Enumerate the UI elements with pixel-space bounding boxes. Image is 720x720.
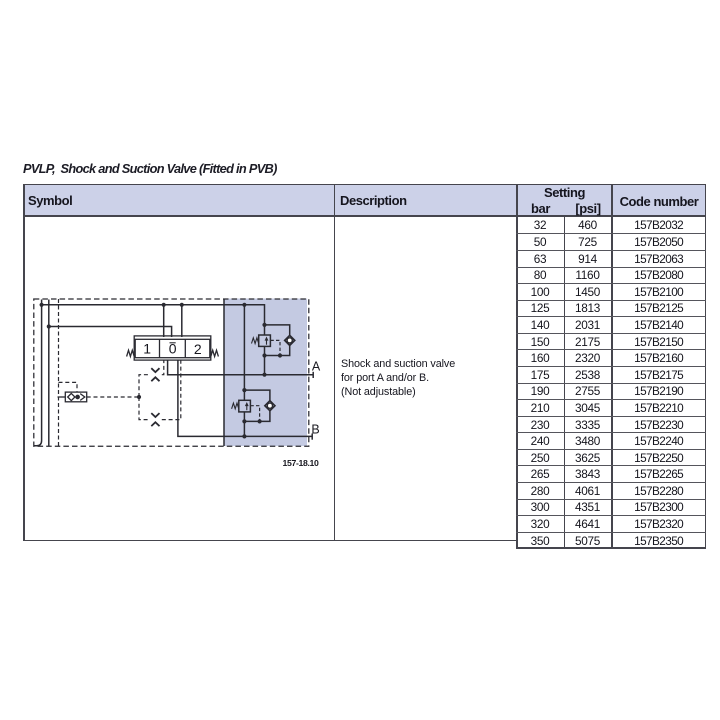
svg-text:1: 1 [143,340,151,356]
svg-text:B: B [311,423,319,437]
svg-text:2: 2 [194,341,202,357]
svg-text:0: 0 [169,340,177,356]
svg-text:A: A [312,360,321,374]
svg-text:157-18.10: 157-18.10 [283,458,319,468]
